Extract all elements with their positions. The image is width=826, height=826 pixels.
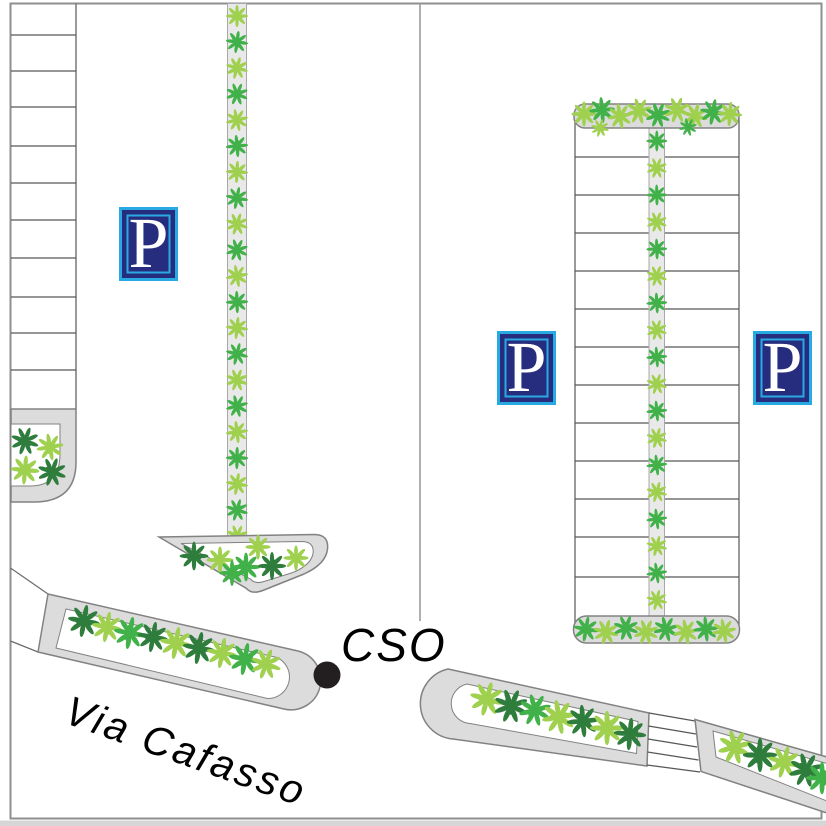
leaf-cluster — [180, 542, 209, 571]
leaf-cluster — [226, 5, 248, 27]
parking-map: P P P CSO Via Cafasso — [0, 0, 826, 826]
leaf-cluster — [646, 131, 667, 152]
parking-icon: P — [506, 327, 546, 407]
parking-sign-1: P — [119, 203, 178, 283]
parking-sign-3: P — [753, 327, 812, 407]
leaf-cluster — [590, 711, 624, 745]
poi-label: CSO — [341, 619, 447, 671]
parking-map-page: P P P CSO Via Cafasso — [0, 0, 826, 826]
poi-dot — [314, 662, 341, 689]
parking-icon: P — [128, 203, 168, 283]
left-corner-island — [5, 409, 76, 502]
parking-sign-2: P — [497, 327, 556, 407]
leaf-cluster — [219, 560, 245, 586]
parking-icon: P — [762, 327, 802, 407]
leaf-cluster — [283, 545, 308, 570]
leaf-cluster — [571, 101, 596, 126]
image-bottom-edge — [0, 821, 826, 826]
